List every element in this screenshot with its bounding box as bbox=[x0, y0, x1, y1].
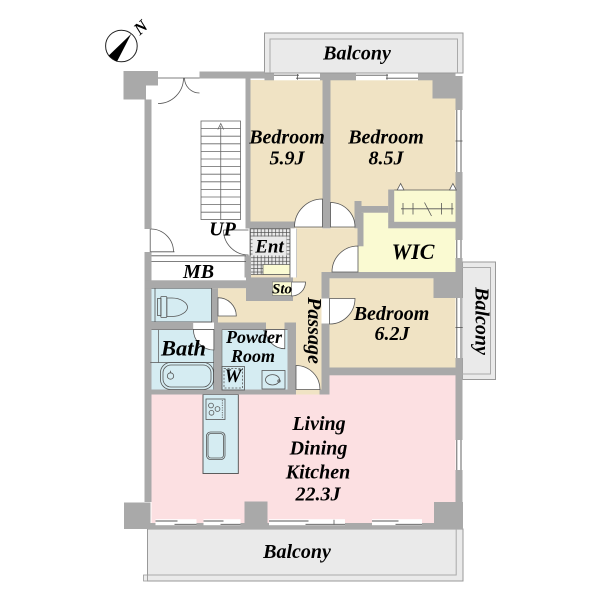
svg-text:Balcony: Balcony bbox=[322, 43, 391, 65]
svg-text:Balcony: Balcony bbox=[471, 286, 493, 355]
svg-text:Living: Living bbox=[291, 413, 345, 435]
svg-text:WIC: WIC bbox=[392, 239, 435, 264]
svg-text:8.5J: 8.5J bbox=[369, 148, 405, 170]
svg-text:Bedroom: Bedroom bbox=[353, 303, 430, 325]
svg-text:MB: MB bbox=[182, 261, 214, 283]
svg-text:5.9J: 5.9J bbox=[270, 148, 306, 170]
svg-text:Balcony: Balcony bbox=[262, 541, 331, 563]
svg-text:Bedroom: Bedroom bbox=[248, 127, 325, 149]
svg-text:Kitchen: Kitchen bbox=[285, 462, 350, 484]
svg-text:6.2J: 6.2J bbox=[375, 323, 411, 345]
svg-text:Passage: Passage bbox=[303, 296, 325, 364]
svg-text:UP: UP bbox=[209, 219, 236, 241]
svg-text:Sto: Sto bbox=[272, 282, 292, 298]
svg-text:Bath: Bath bbox=[160, 336, 206, 361]
svg-text:Room: Room bbox=[230, 346, 275, 366]
svg-text:Dining: Dining bbox=[289, 438, 348, 460]
svg-text:22.3J: 22.3J bbox=[295, 484, 342, 506]
svg-text:Powder: Powder bbox=[225, 327, 283, 347]
svg-text:W: W bbox=[225, 366, 243, 387]
svg-text:Bedroom: Bedroom bbox=[347, 127, 424, 149]
svg-text:Ent: Ent bbox=[254, 237, 284, 258]
